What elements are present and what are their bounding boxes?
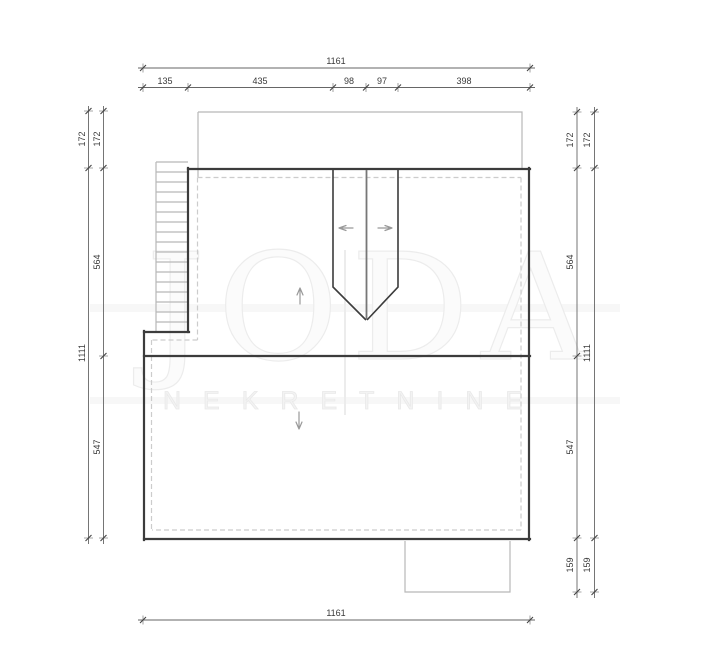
dim-bottom-total: 1161: [326, 608, 345, 618]
dim-right-outer-1: 172: [582, 132, 592, 147]
dim-left-outer-1: 172: [77, 131, 87, 146]
dim-right-inner-3: 547: [565, 439, 575, 454]
dim-right-inner-2: 564: [565, 254, 575, 269]
exterior-walls: [144, 168, 530, 540]
dim-right-inner-1: 172: [565, 132, 575, 147]
staircase: [156, 162, 188, 332]
roof-ridge-channel: [333, 169, 398, 320]
dim-top-seg-5: 398: [456, 76, 471, 86]
dim-top-seg-1: 135: [157, 76, 172, 86]
dim-top-seg-3: 98: [344, 76, 354, 86]
floor-plan-page: JODA NEKRETNINE: [0, 0, 709, 669]
lower-storey-outline: [198, 112, 522, 592]
dim-right-outer-2: 1111: [582, 344, 592, 362]
floor-plan-canvas: 1161 135 435 98 97 398 1161 172 1111 172…: [0, 0, 709, 669]
inner-dashed-outline: [152, 178, 522, 531]
dimension-labels: 1161 135 435 98 97 398 1161 172 1111 172…: [77, 56, 592, 618]
dim-top-total: 1161: [326, 56, 345, 66]
dim-left-inner-2: 564: [92, 254, 102, 269]
dim-right-outer-3: 159: [582, 557, 592, 572]
dim-left-inner-1: 172: [92, 131, 102, 146]
dim-right-inner-4: 159: [565, 557, 575, 572]
arrow-right-icon: [378, 226, 392, 231]
arrow-down-icon: [296, 412, 302, 429]
dim-top-seg-4: 97: [377, 76, 387, 86]
arrow-up-icon: [297, 288, 303, 304]
dim-left-inner-3: 547: [92, 439, 102, 454]
arrow-left-icon: [339, 226, 353, 231]
dim-top-seg-2: 435: [252, 76, 267, 86]
dim-left-outer-2: 1111: [77, 344, 87, 362]
